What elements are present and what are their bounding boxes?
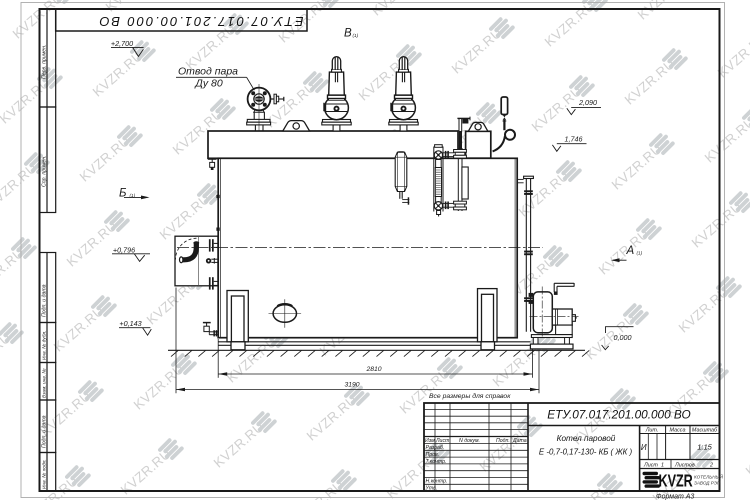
svg-text:2810: 2810: [365, 366, 381, 373]
svg-text:Формат А3: Формат А3: [656, 494, 694, 500]
svg-text:Отвод пара: Отвод пара: [178, 66, 238, 78]
svg-text:2,090: 2,090: [578, 98, 597, 107]
svg-text:Инв. № подл.: Инв. № подл.: [42, 459, 48, 489]
svg-text:Котел паровой: Котел паровой: [557, 434, 616, 443]
svg-text:Лист: Лист: [435, 438, 450, 444]
svg-text:Подп.: Подп.: [496, 438, 510, 444]
svg-text:Перв. примен.: Перв. примен.: [42, 45, 48, 79]
svg-text:+0,143: +0,143: [119, 319, 141, 328]
svg-text:И: И: [641, 443, 647, 452]
svg-text:Подп. и дата: Подп. и дата: [42, 415, 48, 448]
svg-text:3190: 3190: [344, 382, 359, 389]
svg-text:ЕТУ.07.017.201.00.000 ВО: ЕТУ.07.017.201.00.000 ВО: [97, 14, 303, 29]
svg-text:1,746: 1,746: [565, 135, 583, 144]
svg-text:1: 1: [661, 462, 664, 468]
svg-text:Масса: Масса: [670, 428, 686, 434]
svg-text:+2,700: +2,700: [111, 39, 133, 48]
svg-text:Инв. № дубл.: Инв. № дубл.: [42, 330, 48, 360]
svg-text:2: 2: [709, 462, 713, 468]
svg-text:Н.контр.: Н.контр.: [426, 479, 448, 485]
svg-text:А: А: [626, 245, 635, 257]
svg-text:+0,796: +0,796: [113, 245, 135, 254]
svg-text:Лит.: Лит.: [645, 428, 659, 434]
svg-text:Масштаб: Масштаб: [692, 428, 718, 434]
svg-text:Спр. примен.: Спр. примен.: [42, 155, 48, 187]
svg-text:N докум.: N докум.: [459, 438, 480, 444]
svg-text:Пров.: Пров.: [426, 452, 440, 458]
svg-text:Лист: Лист: [643, 462, 658, 468]
svg-text:(1): (1): [637, 250, 643, 255]
svg-text:(1): (1): [353, 33, 359, 38]
svg-text:Дата: Дата: [512, 438, 527, 444]
svg-text:Взам. инв. №: Взам. инв. №: [42, 368, 48, 398]
svg-text:В: В: [344, 28, 352, 40]
svg-text:Листов: Листов: [674, 462, 695, 468]
svg-text:Подп. и дата: Подп. и дата: [42, 284, 48, 317]
svg-text:0,000: 0,000: [614, 333, 632, 342]
svg-text:Разраб.: Разраб.: [426, 445, 445, 451]
svg-text:Т.контр.: Т.контр.: [426, 459, 447, 465]
svg-text:Е -0,7-0,17-130- КБ ( ЖК ): Е -0,7-0,17-130- КБ ( ЖК ): [539, 448, 633, 457]
svg-text:1:15: 1:15: [697, 443, 712, 452]
svg-text:Ду 80: Ду 80: [194, 78, 223, 90]
svg-text:КОТЕЛЬНЫЙ: КОТЕЛЬНЫЙ: [694, 473, 724, 480]
svg-text:KVZR: KVZR: [659, 471, 693, 491]
svg-text:ЗАВОД РЭП: ЗАВОД РЭП: [694, 481, 721, 486]
svg-text:Все размеры для справок: Все размеры для справок: [429, 392, 511, 400]
svg-text:Изм.: Изм.: [425, 438, 436, 444]
svg-text:Утв.: Утв.: [426, 486, 438, 492]
svg-text:ЕТУ.07.017.201.00.000 ВО: ЕТУ.07.017.201.00.000 ВО: [547, 408, 690, 422]
